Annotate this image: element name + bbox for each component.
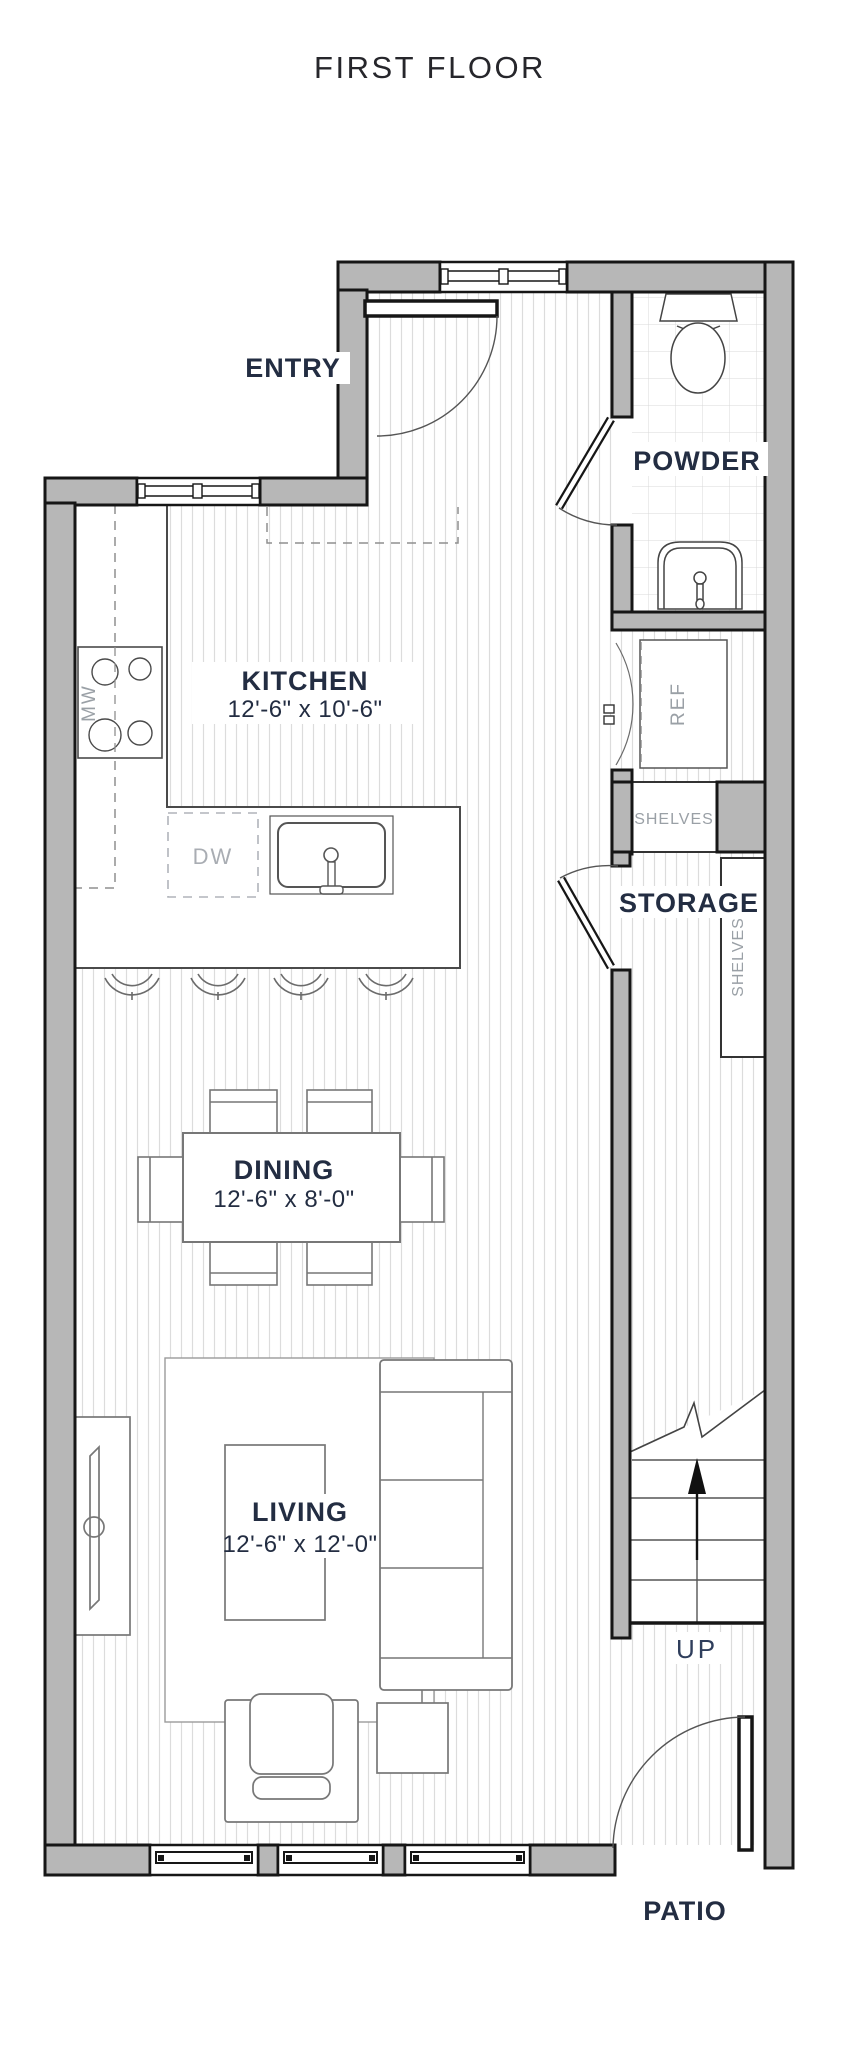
room-label-kitchen: KITCHEN [242,666,369,696]
wall-bottom-mullion [258,1845,278,1875]
dining-chair-icon [400,1157,444,1222]
wall-storage-stub [612,852,630,866]
window-bottom-3 [405,1845,530,1875]
shelves-kitchen-label: SHELVES [634,811,714,828]
wall-interior-long [612,970,630,1638]
room-label-living: LIVING [252,1497,348,1527]
floor-plan-page: FIRST FLOOR ENTRY POWDER KITCHEN 12'-6" … [0,0,846,2048]
sofa-icon [380,1360,512,1690]
shelves-storage-label: SHELVES [730,917,747,997]
kitchen-sink-icon [270,816,393,894]
wall-powder-west-lower [612,525,632,614]
stairs-up-label: UP [676,1634,718,1664]
room-label-entry: ENTRY [245,353,341,383]
bathroom-sink-icon [658,542,742,609]
window-bottom-1 [150,1845,258,1875]
microwave-label: MW [79,684,100,722]
wall-right [765,262,793,1868]
wall-bottom-end [530,1845,615,1875]
room-label-storage: STORAGE [619,888,759,918]
refrigerator-label: REF [668,682,689,726]
wall-kitchen-north-a [45,478,137,505]
room-dims-kitchen: 12'-6" x 10'-6" [227,696,382,723]
room-label-patio: PATIO [643,1896,727,1926]
wall-powder-west-upper [612,292,632,417]
dining-chair-icon [307,1090,372,1133]
wall-shelves-poche [717,782,765,852]
room-dims-dining: 12'-6" x 8'-0" [213,1186,354,1213]
wall-powder-south [612,612,765,630]
room-dims-living: 12'-6" x 12'-0" [222,1531,377,1558]
window-top [440,262,567,292]
dining-chair-icon [307,1242,372,1285]
armchair-icon [225,1694,358,1822]
wall-entry-west [338,290,367,480]
window-kitchen [137,478,260,505]
dining-chair-icon [210,1242,277,1285]
wall-bottom-a [45,1845,150,1875]
wall-top-right [567,262,793,292]
dining-chair-icon [210,1090,277,1133]
tv-console-icon [75,1417,130,1635]
wall-shelves-west [612,782,632,854]
wall-kitchen-north-b [260,478,367,505]
room-label-powder: POWDER [633,446,761,476]
page-title: FIRST FLOOR [314,50,546,85]
dining-chair-icon [138,1157,183,1222]
dishwasher-label: DW [193,844,234,869]
wall-top-left [338,262,440,292]
floor-plan-drawing: FIRST FLOOR ENTRY POWDER KITCHEN 12'-6" … [0,0,846,2048]
side-table [377,1703,448,1773]
window-bottom-2 [278,1845,383,1875]
door-stop-mark [604,705,614,713]
wall-bottom-mullion [383,1845,405,1875]
door-stop-mark [604,716,614,724]
wall-left [45,503,75,1875]
room-label-dining: DINING [234,1155,335,1185]
